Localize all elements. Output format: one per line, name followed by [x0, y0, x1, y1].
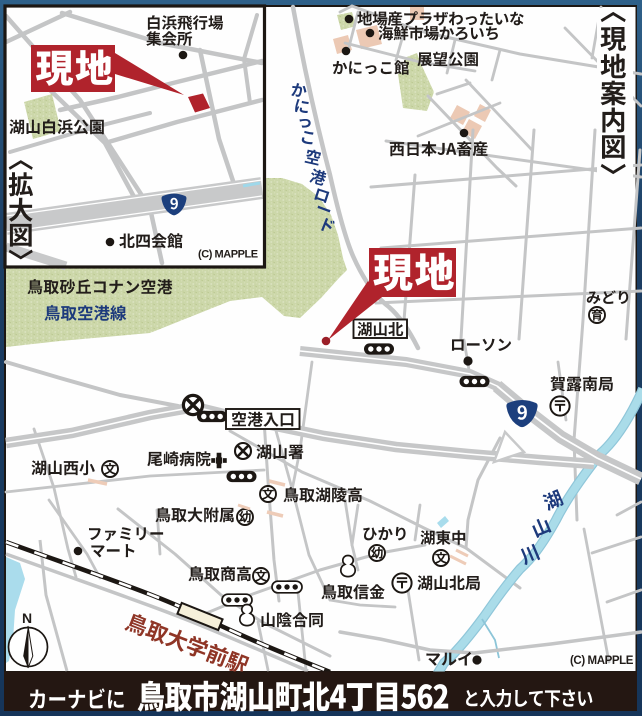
svg-text:N: N	[22, 610, 32, 626]
svg-text:(C) MAPPLE: (C) MAPPLE	[198, 249, 258, 261]
svg-text:(C) MAPPLE: (C) MAPPLE	[570, 655, 634, 667]
